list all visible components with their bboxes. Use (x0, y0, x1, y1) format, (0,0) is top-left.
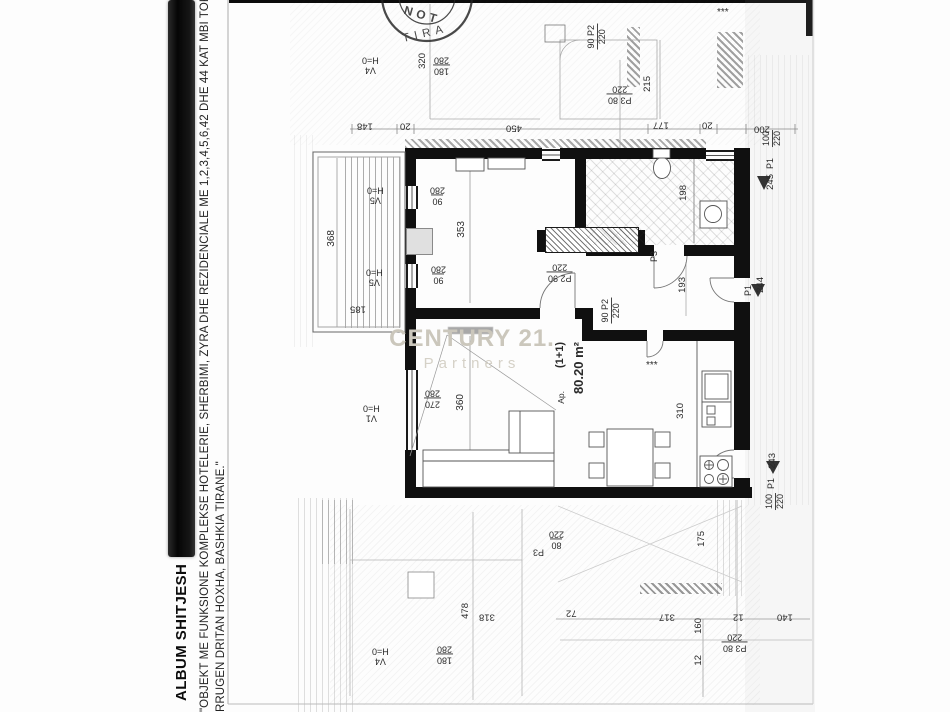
dim-label: 360 (456, 393, 467, 412)
dim-label: 244 (756, 276, 766, 294)
dim-label: 20 (701, 119, 714, 129)
dim-label: 245 (766, 173, 776, 191)
dim-label: 270280 (424, 388, 441, 408)
dim-label: 317 (658, 611, 676, 621)
dim-label: 90280 (430, 264, 447, 284)
dim-label: 20 (399, 120, 412, 130)
dim-label: 140 (776, 611, 794, 621)
dim-label: 100220 (762, 130, 782, 147)
plan-labels: V4H=0320180280148204501772020090 P2220P3… (0, 0, 950, 712)
dim-label: 450 (505, 122, 523, 132)
dim-label: 90 P2220 (601, 298, 621, 324)
dim-label: 90 P2220 (587, 24, 607, 50)
dim-label: 243 (768, 452, 778, 470)
dim-label: 198 (679, 184, 689, 202)
dim-label: 160 (694, 617, 704, 635)
dim-label: 12 (694, 654, 704, 667)
dim-label: 180280 (433, 55, 450, 75)
dim-label: *** (716, 8, 730, 19)
dim-label: 368 (327, 229, 338, 248)
dim-label: V4H=0 (371, 646, 390, 665)
dim-label: 215 (643, 75, 653, 93)
dim-label: 318 (478, 611, 496, 621)
dim-label: 320 (418, 52, 428, 70)
dim-label: V4H=0 (361, 55, 380, 74)
dim-label: V5H=0 (365, 267, 384, 286)
dim-label: (1+1) (555, 341, 567, 369)
dim-label: 180280 (436, 644, 453, 664)
dim-label: 12 (732, 611, 745, 621)
dim-label: 478 (461, 602, 471, 620)
dim-label: P1 (744, 284, 754, 297)
dim-label: 310 (676, 402, 686, 420)
dim-label: 353 (457, 220, 468, 239)
dim-label: 193 (678, 276, 688, 294)
dim-label: P3 80220 (722, 632, 748, 652)
scanned-album-page: ALBUM SHITJESH "OBJEKT ME FUNKSIONE KOMP… (0, 0, 950, 712)
dim-label: P1 (766, 157, 776, 170)
dim-label: 80220 (548, 529, 565, 549)
dim-label: 177 (652, 119, 670, 129)
dim-label: *** (645, 361, 659, 372)
dim-label: V1H=0 (362, 403, 381, 422)
dim-label: 175 (697, 530, 707, 548)
dim-label: P3 80220 (607, 84, 633, 104)
dim-label: P3 (532, 547, 545, 557)
dim-label: 185 (349, 303, 367, 313)
dim-label: 80.20 m² (572, 341, 586, 395)
dim-label: Ap. (557, 390, 566, 405)
dim-label: 72 (565, 607, 578, 617)
dim-label: 100220 (765, 493, 785, 510)
dim-label: P2 90220 (547, 262, 573, 282)
dim-label: V5H=0 (366, 185, 385, 204)
dim-label: 90280 (429, 185, 446, 205)
dim-label: P3 (650, 250, 660, 263)
dim-label: P1 (767, 477, 777, 490)
dim-label: 148 (356, 120, 374, 130)
